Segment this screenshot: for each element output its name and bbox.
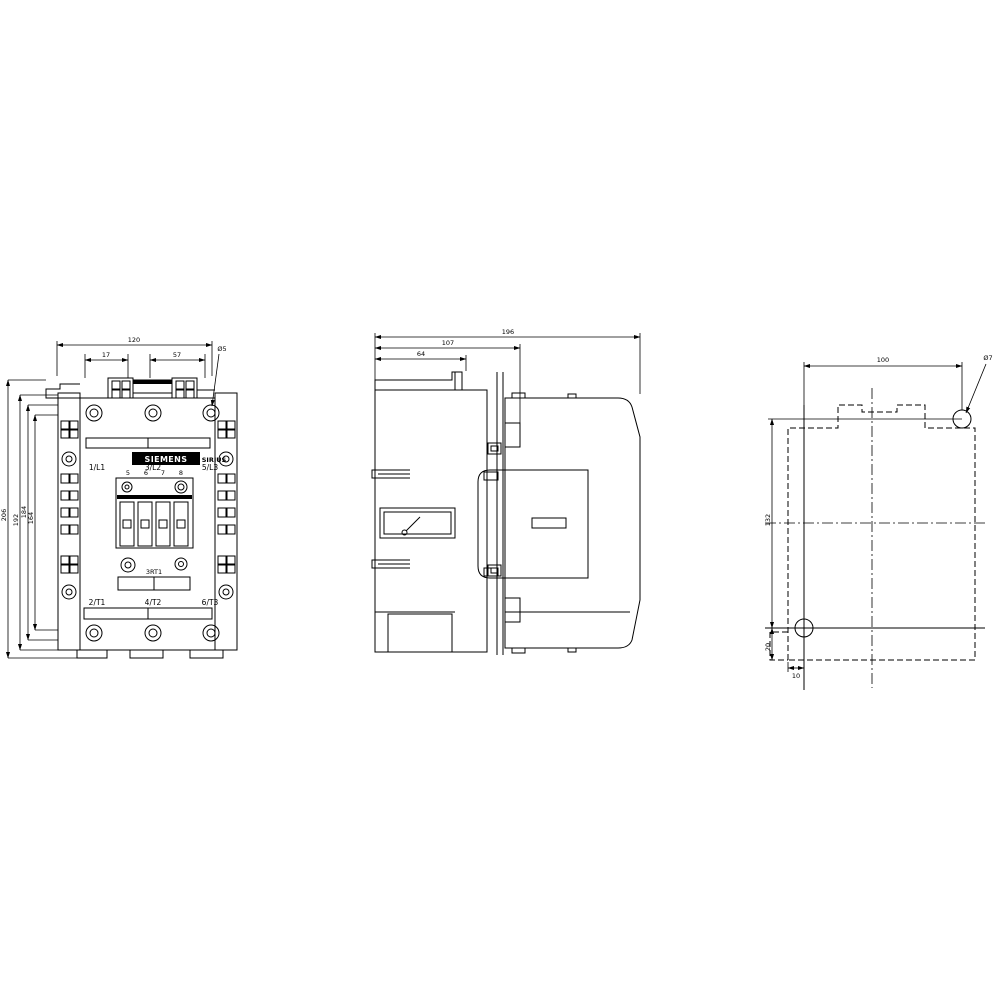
dim-hole-spacing-v: 132	[764, 514, 772, 526]
front-left-aux-rail	[58, 393, 80, 650]
screw-icon	[122, 482, 132, 492]
side-view: 196 107 64	[372, 328, 640, 655]
front-right-aux-rail	[215, 393, 237, 650]
dim-hole-offset-left: 10	[792, 672, 800, 680]
aux-terminal-number: 7	[161, 469, 165, 477]
terminal-label-5L3: 5/L3	[202, 463, 218, 472]
side-body	[372, 372, 640, 655]
screwdriver-icon	[402, 517, 420, 535]
screw-icon	[175, 558, 187, 570]
dim-depth-front: 64	[417, 350, 425, 358]
terminal-label-6T3: 6/T3	[202, 598, 219, 607]
aux-contact-block	[116, 478, 193, 548]
dimension-drawing-page: SIEMENS SIRIUS 1/L1 3/L2 5/L3 5 6 7 8	[0, 0, 1000, 1000]
contactor-dimension-drawing: SIEMENS SIRIUS 1/L1 3/L2 5/L3 5 6 7 8	[0, 0, 1000, 1000]
dim-depth-mid: 107	[442, 339, 454, 347]
dim-height-outer: 206	[0, 509, 8, 521]
dim-hole-spacing-right: 57	[173, 351, 181, 359]
screw-icon	[86, 405, 102, 421]
screw-icon	[86, 625, 102, 641]
terminal-label-1L1: 1/L1	[89, 463, 105, 472]
terminal-label-2T1: 2/T1	[89, 598, 106, 607]
rear-drilling-view: 100 Ø7 132 20 10	[764, 354, 993, 690]
screw-icon	[62, 452, 76, 466]
dim-height-2: 192	[12, 514, 20, 526]
aux-terminal-number: 8	[179, 469, 183, 477]
screw-icon	[175, 481, 187, 493]
model-label: 3RT1	[146, 568, 162, 576]
screw-icon	[203, 405, 219, 421]
dim-hole-diameter-rear: Ø7	[983, 354, 992, 362]
dim-hole-spacing-h: 100	[877, 356, 889, 364]
dim-hole-offset-bottom: 20	[764, 643, 772, 651]
screw-icon	[203, 625, 219, 641]
front-view: SIEMENS SIRIUS 1/L1 3/L2 5/L3 5 6 7 8	[0, 336, 237, 658]
rear-dimensions: 100 Ø7 132 20 10	[764, 354, 993, 680]
front-body: SIEMENS SIRIUS 1/L1 3/L2 5/L3 5 6 7 8	[46, 378, 227, 658]
dim-hole-offset-left: 17	[102, 351, 110, 359]
dim-hole-diameter: Ø5	[217, 345, 226, 353]
aux-terminal-number: 5	[126, 469, 130, 477]
screw-icon	[121, 558, 135, 572]
dim-height-inner: 164	[27, 512, 35, 524]
aux-terminal-number: 6	[144, 469, 148, 477]
dim-depth-total: 196	[502, 328, 514, 336]
dim-overall-width: 120	[128, 336, 140, 344]
screw-icon	[219, 585, 233, 599]
rear-outline	[788, 405, 975, 660]
screw-icon	[145, 625, 161, 641]
screw-icon	[145, 405, 161, 421]
side-dimensions: 196 107 64	[375, 328, 640, 430]
terminal-label-4T2: 4/T2	[145, 598, 162, 607]
screw-icon	[62, 585, 76, 599]
